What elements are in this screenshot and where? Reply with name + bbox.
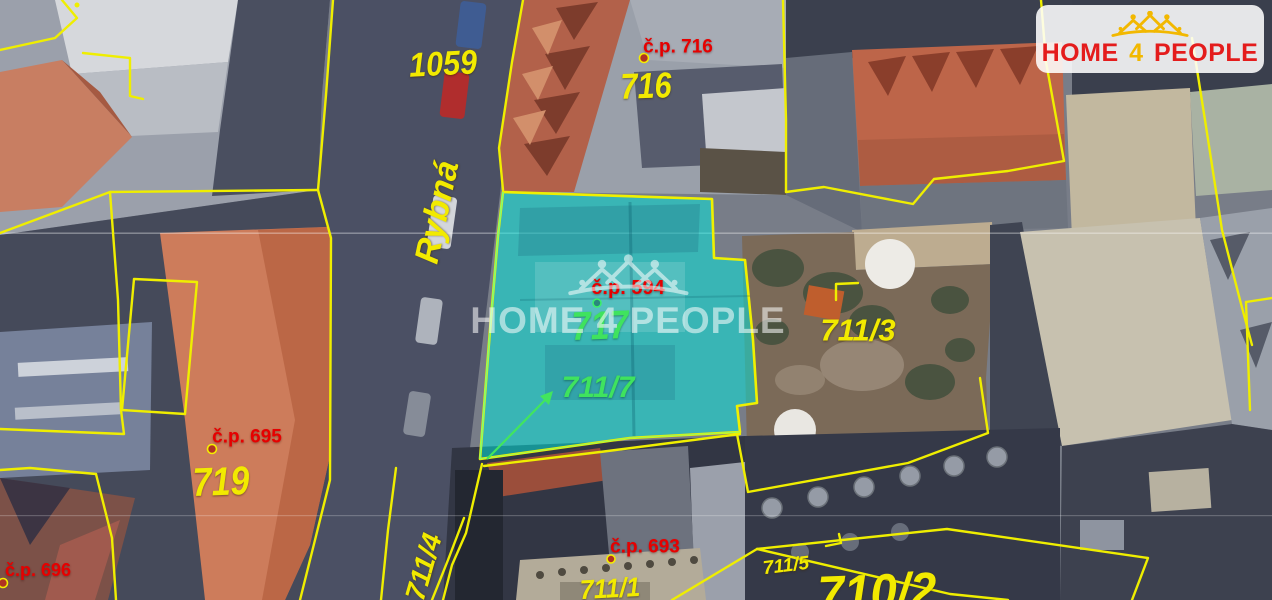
aerial-imagery <box>0 0 1272 600</box>
logo-word-people: PEOPLE <box>1154 39 1258 67</box>
logo-word-4: 4 <box>1126 39 1146 67</box>
tile-seam <box>0 515 1272 516</box>
cadastral-map-viewport[interactable]: 1059 č.p. 716 716 Rybná č.p. 594 717 711… <box>0 0 1272 600</box>
logo-word-home: HOME <box>1042 39 1119 67</box>
home4people-logo-icon <box>1100 11 1200 38</box>
brand-logo-text: HOME 4 PEOPLE <box>1042 39 1259 68</box>
brand-logo: HOME 4 PEOPLE <box>1036 5 1264 73</box>
